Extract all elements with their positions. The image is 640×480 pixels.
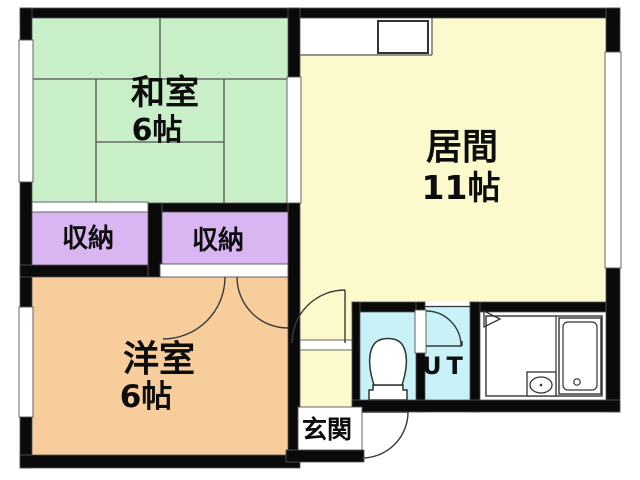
sink-icon	[378, 21, 428, 53]
toilet-bowl	[370, 339, 407, 386]
closet-right-label: 収納	[168, 228, 268, 254]
floor-plan: 和室 6帖 居間 11帖 洋室 6帖 収納 収納 玄関 UT	[0, 0, 640, 480]
wall-bottom-west	[20, 455, 300, 468]
wall-toilet-left	[352, 302, 360, 412]
kitchen-counter	[298, 18, 432, 55]
closet-left-label: 収納	[38, 226, 138, 252]
threshold-hall	[300, 340, 352, 350]
entrance-door-arc	[362, 412, 408, 458]
washitsu-label: 和室	[115, 76, 215, 110]
washitsu-size-label: 6帖	[107, 116, 207, 146]
room-hall-lower	[298, 350, 352, 407]
opening-closet-right	[160, 264, 288, 277]
wall-genkan-bottom	[286, 450, 364, 462]
window-yoshitsu	[19, 307, 33, 417]
door-gap-toilet	[415, 310, 426, 353]
yoshitsu-label: 洋室	[99, 342, 219, 378]
wall-closet-bottom	[20, 265, 148, 277]
toilet-tank	[369, 385, 407, 400]
yoshitsu-size-label: 6帖	[86, 382, 206, 413]
wall-closet-top	[162, 203, 288, 212]
ima-label: 居間	[402, 130, 522, 166]
sliding-door-closet-left	[32, 202, 148, 212]
wall-toilet-top	[352, 302, 425, 312]
toilet-icon	[369, 339, 407, 401]
ima-size-label: 11帖	[401, 171, 521, 204]
ut-label: UT	[405, 354, 485, 378]
wall-bath-top	[470, 302, 606, 312]
genkan-label: 玄関	[287, 417, 367, 442]
sliding-door-washitsu-ima	[287, 77, 301, 203]
washbasin-drain	[540, 384, 543, 387]
window-washitsu	[19, 40, 33, 182]
wall-center-divider	[288, 8, 300, 462]
window-ima	[605, 52, 621, 268]
wall-bath-bottom	[352, 400, 620, 412]
wall-top	[20, 8, 620, 18]
